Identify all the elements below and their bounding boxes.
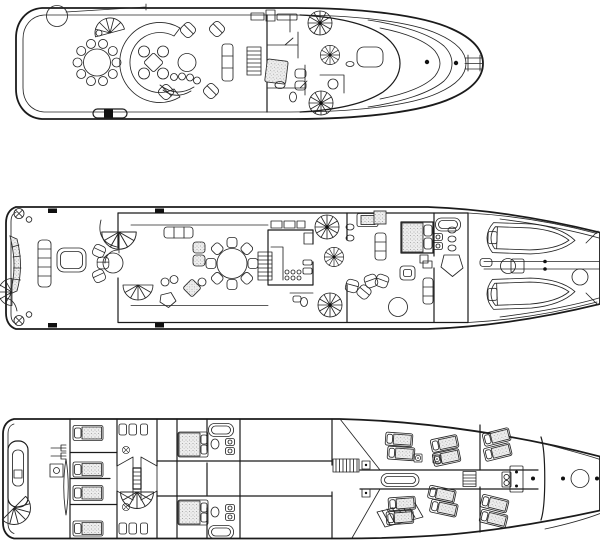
dinette-chair (363, 273, 379, 289)
kayak (64, 459, 69, 515)
crew-bunk (479, 509, 508, 528)
bathtub (209, 424, 234, 437)
curved-stair-wall (100, 220, 117, 247)
plant (161, 278, 169, 286)
toilet (290, 92, 297, 102)
crew-mess-table-inner (385, 477, 416, 484)
burner (291, 276, 295, 280)
corridor-walls (157, 461, 538, 496)
spiral-stair (324, 247, 343, 266)
main-deck-plan (0, 207, 600, 329)
stair-hatched (333, 459, 359, 472)
burner (297, 276, 301, 280)
stool (179, 73, 186, 80)
lounger (179, 21, 197, 39)
crew-mess-table (381, 474, 419, 487)
vestibule-port (117, 457, 133, 500)
cabinet-dot (515, 485, 518, 488)
rail-dot (543, 267, 547, 271)
round-table (103, 253, 123, 273)
bath-fixture (129, 523, 137, 534)
toilet (211, 507, 219, 517)
aft-door-arc (105, 250, 118, 263)
hull-outline (16, 8, 483, 119)
ladder-rungs (133, 472, 141, 484)
basin (448, 236, 456, 242)
salon-sofa-dividers (174, 227, 184, 238)
garage-hatch (14, 470, 22, 478)
gate-marker (48, 323, 57, 328)
bow-bulwark (468, 213, 597, 323)
galley-walls (268, 230, 313, 285)
burner (297, 270, 301, 274)
mast-box (251, 13, 264, 20)
pillow (424, 238, 432, 249)
deck-box (50, 464, 63, 477)
galley-sink (303, 260, 312, 265)
aft-sofa-dividers (38, 249, 51, 276)
lounger (208, 20, 226, 38)
fairlead (14, 316, 24, 326)
crew-bunk (388, 496, 416, 511)
tv-cabinet (423, 261, 432, 268)
cabin-sofa-dividers (375, 242, 386, 251)
yacht-deck-plans-page (0, 0, 600, 540)
fridge (304, 233, 313, 244)
cabinet (297, 221, 305, 228)
corridor-stair-treads (463, 475, 476, 484)
round-seat (389, 298, 408, 317)
captain-bed (265, 59, 289, 84)
crane-base (480, 259, 492, 267)
sofa-divider (222, 56, 233, 68)
fairlead (14, 209, 24, 219)
lounge-table (144, 53, 164, 73)
bow-ladder (465, 55, 483, 71)
toilet (301, 298, 308, 307)
helm-seat (295, 81, 306, 90)
spiral-stair (318, 293, 342, 317)
sofa (222, 44, 233, 81)
cocktail-table (178, 54, 196, 72)
cabin-sofa-dividers (423, 287, 433, 296)
cabinet (271, 221, 282, 228)
equipment-dot (365, 492, 367, 494)
bow-arc (380, 28, 440, 99)
crane-motor (501, 259, 516, 274)
deck-dot (595, 477, 599, 481)
shower-drain (122, 446, 129, 453)
sun-pad (357, 47, 383, 67)
bath-fixture (129, 424, 137, 435)
cleat (26, 217, 32, 223)
lounge-chair (158, 46, 169, 57)
crew-bunk (386, 510, 414, 525)
sun-deck-plan (16, 4, 483, 119)
sink (434, 243, 443, 250)
sink (226, 505, 235, 512)
bath-fixture (119, 523, 127, 534)
deck-chair (91, 268, 107, 284)
single-bed (73, 521, 103, 536)
bath-fixture (141, 424, 148, 435)
bath-fixture (119, 424, 127, 435)
spiral-stair (308, 11, 332, 35)
tender-boat (487, 277, 576, 310)
fork-fitting (51, 453, 66, 459)
deck-dot (561, 477, 565, 481)
washer (414, 454, 422, 462)
cabin-sofa (375, 233, 386, 260)
cabin-sofa (423, 278, 433, 304)
bathtub (209, 526, 234, 539)
dining-table-10 (73, 39, 121, 85)
stair-post (96, 30, 102, 36)
double-bed (178, 500, 208, 525)
bath-fixture (141, 523, 148, 534)
forepeak-hatch (571, 470, 589, 488)
toilet (211, 439, 219, 449)
wardrobe (374, 211, 386, 224)
crew-bunk (432, 448, 461, 466)
desk-chair (374, 273, 390, 289)
straight-stair (258, 252, 272, 280)
crew-bunk (482, 427, 511, 446)
seat-oval (346, 62, 354, 67)
desk (320, 75, 344, 93)
burner (285, 276, 289, 280)
curved-lounge (120, 23, 180, 103)
gate-marker (155, 323, 164, 328)
washer-drum (504, 474, 509, 479)
equipment-dot (365, 464, 367, 466)
deck-chair (91, 243, 107, 259)
superstructure-front (300, 15, 400, 112)
galley-counter (271, 247, 283, 280)
stool (171, 74, 178, 81)
single-bed (73, 486, 103, 501)
locker (420, 255, 428, 263)
stern-inner-line (8, 424, 14, 534)
gate-marker (104, 110, 113, 118)
fork-fitting (51, 445, 66, 451)
crew-bunk (483, 442, 512, 461)
cleat (26, 312, 32, 318)
desk-chair (328, 79, 338, 89)
sink (226, 448, 235, 455)
helm-seat (295, 69, 306, 78)
sink (293, 296, 301, 302)
galley-sink (303, 268, 312, 274)
cabin-table-inner (404, 270, 412, 277)
plant (198, 278, 206, 286)
spiral-stair (309, 91, 333, 115)
double-bed (178, 432, 208, 457)
salon-sofa (164, 227, 193, 238)
fan-stair (123, 285, 153, 300)
settee-cushion (361, 216, 375, 225)
gate-marker (48, 209, 57, 214)
lower-deck-plan (2, 419, 600, 539)
cabin-table (400, 266, 415, 280)
spiral-stair (315, 215, 339, 239)
deck-plans-canvas (0, 0, 600, 540)
plant (170, 276, 178, 284)
capstan (572, 269, 588, 285)
rail-dot (543, 260, 547, 264)
bow-tick (586, 231, 598, 305)
garage-inner (13, 450, 24, 486)
gate-marker (155, 209, 164, 214)
burner (285, 270, 289, 274)
shower (441, 255, 463, 277)
aft-sofa (38, 240, 51, 287)
deck-dot (531, 477, 535, 481)
straight-stair (247, 47, 261, 75)
deck-dot (425, 60, 429, 64)
single-bed (73, 426, 103, 441)
sink (434, 234, 443, 241)
washer-drum (504, 480, 509, 485)
sink (226, 439, 235, 446)
cabinet-dot (515, 471, 518, 474)
stool (187, 74, 194, 81)
tender-boat (487, 222, 576, 255)
armchair (193, 255, 205, 266)
basin (448, 245, 456, 251)
lounger (202, 82, 220, 100)
trunk-ladder (133, 468, 141, 489)
crew-bunk (480, 494, 509, 513)
deck-box-dial (54, 468, 60, 474)
cabinet (284, 221, 295, 228)
vestibule-stbd (141, 457, 157, 500)
crew-bunk (385, 432, 413, 447)
fan-stair (92, 15, 125, 37)
basin (448, 227, 456, 233)
lounge-chair (139, 46, 150, 57)
burner (291, 270, 295, 274)
pillow (424, 225, 432, 236)
lounge-chair (139, 68, 150, 79)
dining-table-8 (206, 238, 258, 290)
crew-bunk (430, 434, 459, 452)
casing-diagonals (340, 419, 380, 538)
spiral-stair (320, 45, 339, 64)
deck-dot (454, 61, 458, 65)
stool (194, 77, 201, 84)
lounge-chair (158, 68, 169, 79)
dinette-chair (355, 283, 372, 300)
fore-bulkhead (541, 437, 545, 520)
master-bed-mattress (402, 223, 423, 252)
stair-treads (336, 459, 357, 472)
sink (226, 514, 235, 521)
aft-table-inner (61, 252, 83, 269)
crew-bunk (387, 446, 415, 461)
single-bed (73, 462, 103, 477)
armchair (193, 242, 205, 253)
